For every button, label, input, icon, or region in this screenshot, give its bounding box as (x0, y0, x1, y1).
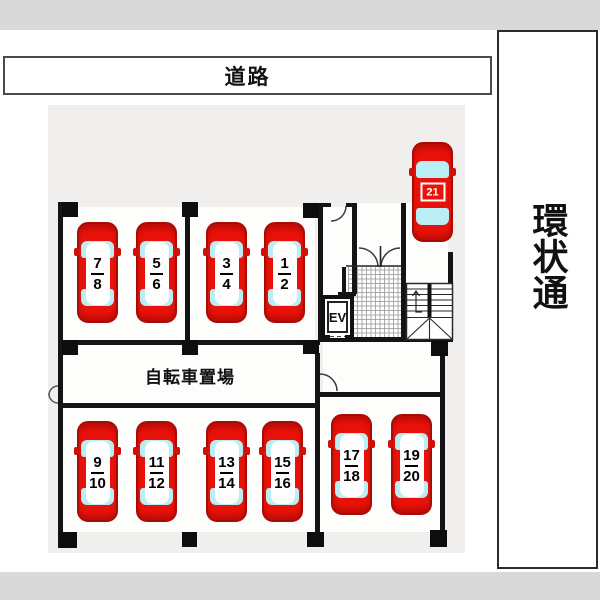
space-number-top: 17 (343, 448, 360, 463)
space-number-bottom: 20 (403, 469, 420, 484)
car-space-13-14: 13 14 (206, 421, 247, 522)
wall-stair-left (401, 203, 406, 342)
car-rear-window (416, 208, 449, 225)
pillar (430, 530, 447, 547)
car-space-7-8: 7 8 (77, 222, 118, 323)
car-space-15-16: 15 16 (262, 421, 303, 522)
space-number-top: 5 (152, 256, 160, 271)
car-space-21: 21 (412, 142, 453, 242)
pillar (182, 202, 198, 217)
fraction-line (220, 273, 233, 275)
ring-road-box: 環状通 (497, 30, 598, 569)
space-number-plate: 9 10 (86, 441, 110, 504)
pillar (60, 532, 77, 548)
elevator-label: EV (329, 310, 346, 325)
car-space-3-4: 3 4 (206, 222, 247, 323)
fraction-line (405, 465, 418, 467)
space-number-plate: 15 16 (271, 441, 295, 504)
pillar (62, 340, 78, 355)
ring-road-label: 環状通 (530, 202, 566, 310)
wall-right-bay-right (440, 356, 445, 535)
wall-mid-vertical (315, 353, 320, 535)
space-number-bottom: 6 (152, 277, 160, 292)
space-number-plate: 13 14 (215, 441, 239, 504)
pillar (303, 340, 319, 354)
car-space-5-6: 5 6 (136, 222, 177, 323)
space-number-bottom: 4 (222, 277, 230, 292)
car-space-9-10: 9 10 (77, 421, 118, 522)
car-space-17-18: 17 18 (331, 414, 372, 515)
parking-floorplan-page: { "top_road": { "label": "道路" }, "right_… (0, 0, 600, 600)
pillar (182, 340, 198, 355)
lobby-corridor-interior (323, 342, 440, 392)
wall-bicycle-bottom (58, 403, 318, 408)
space-number-plate: 17 18 (340, 434, 364, 497)
space-number-plate: 3 4 (215, 242, 239, 305)
fraction-line (276, 472, 289, 474)
pillar (62, 202, 78, 217)
road-label: 道路 (225, 61, 271, 91)
bottom-gray-band (0, 572, 600, 600)
space-number-bottom: 14 (218, 476, 235, 491)
wall-hall-left (342, 267, 346, 296)
wall-room-right (352, 203, 357, 294)
space-number-badge: 21 (420, 183, 445, 202)
space-number-bottom: 18 (343, 469, 360, 484)
space-number-plate: 19 20 (400, 434, 424, 497)
space-number-bottom: 16 (274, 476, 291, 491)
elevator-shaft: EV (321, 295, 354, 339)
wall-left (58, 202, 63, 548)
space-number-top: 1 (280, 256, 288, 271)
bicycle-area-label: 自転車置場 (115, 363, 265, 388)
car-space-19-20: 19 20 (391, 414, 432, 515)
fraction-line (91, 472, 104, 474)
space-number-top: 13 (218, 455, 235, 470)
space-number-bottom: 10 (89, 476, 106, 491)
fraction-line (150, 472, 163, 474)
fraction-line (278, 273, 291, 275)
space-number-top: 11 (149, 455, 165, 470)
space-number-top: 7 (93, 256, 101, 271)
fraction-line (220, 472, 233, 474)
fraction-line (91, 273, 104, 275)
pillar (182, 532, 197, 547)
space-number-plate: 1 2 (273, 242, 297, 305)
pillar (431, 340, 448, 356)
elevator-car: EV (327, 301, 348, 333)
road-box: 道路 (3, 56, 492, 95)
space-number-top: 9 (93, 455, 101, 470)
space-number-top: 3 (222, 256, 230, 271)
space-number-plate: 5 6 (145, 242, 169, 305)
car-space-11-12: 11 12 (136, 421, 177, 522)
entrance-corridor-interior (357, 203, 401, 267)
space-number-bottom: 2 (280, 277, 288, 292)
fraction-line (150, 273, 163, 275)
car-space-1-2: 1 2 (264, 222, 305, 323)
space-number-bottom: 12 (148, 476, 165, 491)
space-number-top: 15 (274, 455, 291, 470)
space-number-bottom: 8 (93, 277, 101, 292)
wall-upper-bay-divider (185, 211, 190, 343)
space-number-plate: 7 8 (86, 242, 110, 305)
space-number-plate: 11 12 (145, 441, 169, 504)
top-gray-band (0, 0, 600, 30)
space-number-top: 19 (403, 448, 420, 463)
car-windshield (416, 161, 449, 178)
pillar (307, 532, 324, 547)
fraction-line (345, 465, 358, 467)
wall-stair-right (448, 252, 453, 342)
pillar (303, 203, 319, 218)
wall-right-bay-top (318, 392, 445, 397)
